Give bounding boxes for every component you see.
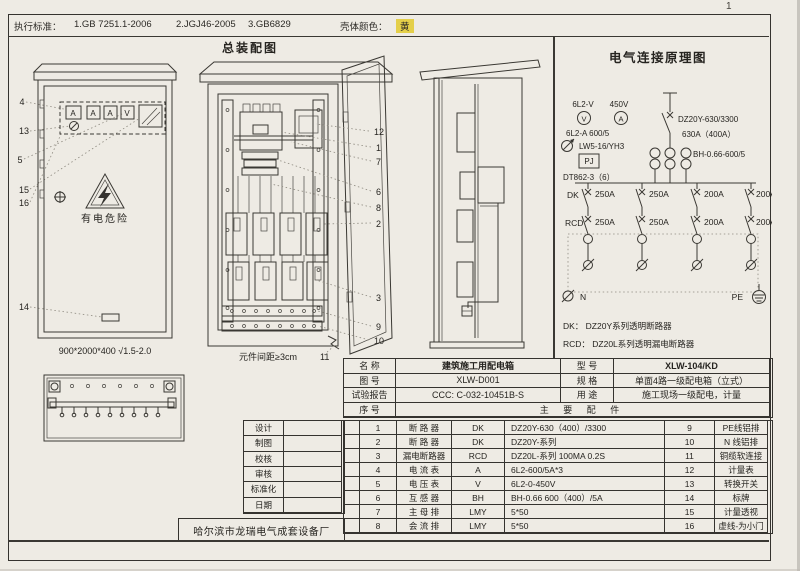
callout-13: 13 — [19, 126, 29, 136]
svg-text:PJ: PJ — [584, 157, 593, 166]
part-name: 电 流 表 — [397, 463, 452, 477]
ground-braid — [328, 336, 339, 349]
part-no: 6 — [360, 491, 397, 505]
pe-earth-symbol — [753, 284, 766, 304]
rcd-row-label: RCD — [565, 218, 583, 228]
neutral-label: N — [580, 292, 586, 302]
part-spec: DZ20Y-系列 — [505, 435, 665, 449]
part-name2: 标牌 — [715, 491, 768, 505]
callout-5: 5 — [17, 155, 22, 165]
part-code: BH — [452, 491, 505, 505]
mounting-panel — [218, 94, 328, 330]
spec-label: 规 格 — [561, 374, 614, 389]
standard-item-2: 2.JGJ46-2005 — [176, 19, 236, 30]
rcd-rating-4: 200A — [756, 217, 772, 227]
callout-4: 4 — [19, 97, 24, 107]
part-name2: N 线铝排 — [715, 435, 768, 449]
warning-text: 有电危险 — [81, 212, 129, 225]
part-name: 互 感 器 — [397, 491, 452, 505]
main-breaker-symbol — [662, 93, 677, 148]
part-spec: 5*50 — [505, 505, 665, 519]
main-breaker-rating: 630A（400A） — [682, 130, 735, 139]
part-no2: 12 — [665, 463, 715, 477]
drawing-no-value: XLW-D001 — [396, 374, 561, 389]
part-code: V — [452, 477, 505, 491]
callout-16: 16 — [19, 198, 29, 208]
signoff-check: 校核 — [244, 452, 284, 467]
use-label: 用 途 — [561, 388, 614, 403]
name-value: 建筑施工用配电箱 — [396, 359, 561, 374]
part-code: DK — [452, 435, 505, 449]
callout-1: 1 — [376, 143, 381, 153]
test-report-value: CCC: C-032-10451B-S — [396, 388, 561, 403]
cabinet-base — [430, 342, 524, 348]
part-no: 4 — [360, 463, 397, 477]
neutral-terminal — [562, 290, 574, 302]
part-name2: PE线铝排 — [715, 421, 768, 435]
main-breaker — [240, 104, 282, 150]
parts-header: 主 要 配 件 — [396, 403, 770, 418]
callout-14: 14 — [19, 302, 29, 312]
drawing-sheet: 1 执行标准： 1.GB 7251.1-2006 2.JGJ46-2005 3.… — [0, 0, 800, 571]
cabinet-open-view-drawing: 12 1 7 6 8 2 3 9 10 元件间距≥3cm 11 — [196, 52, 421, 364]
ammeter-1: A — [70, 109, 76, 118]
part-no: 3 — [360, 449, 397, 463]
pe-label: PE — [732, 292, 744, 302]
callout-10: 10 — [374, 336, 384, 346]
part-code: RCD — [452, 449, 505, 463]
part-spec: 6L2-600/5A*3 — [505, 463, 665, 477]
svg-text:A: A — [618, 115, 623, 124]
part-name: 电 压 表 — [397, 477, 452, 491]
callout-12: 12 — [374, 127, 384, 137]
part-no2: 14 — [665, 491, 715, 505]
titleblock-bottom-line — [8, 540, 769, 542]
nameplate — [102, 314, 119, 321]
component-box-2a — [460, 172, 475, 199]
cabinet-front-view-drawing: 4 13 5 15 16 14 A A A V 有电危险 — [10, 56, 200, 362]
part-name2: 铜缆软连接 — [715, 449, 768, 463]
part-name: 断 路 器 — [397, 435, 452, 449]
part-code: DK — [452, 421, 505, 435]
voltmeter-label: 6L2-V — [572, 100, 594, 109]
cabinet-door — [44, 86, 166, 332]
signoff-standardize: 标准化 — [244, 482, 284, 497]
rain-hood — [34, 64, 176, 72]
part-name2: 计量表 — [715, 463, 768, 477]
standard-item-3: 3.GB6829 — [248, 19, 291, 30]
ct-label: BH-0.66-600/5 — [693, 150, 746, 159]
part-spec: 6L2-0-450V — [505, 477, 665, 491]
voltmeter: V — [124, 109, 130, 118]
part-spec: DZ20Y-630（400）/3300 — [505, 421, 665, 435]
energy-meter — [295, 110, 322, 148]
dk-rating-1: 250A — [595, 189, 615, 199]
signoff-block: 设计 制图 校核 审核 标准化 日期 — [243, 420, 345, 514]
standard-item-1: 1.GB 7251.1-2006 — [74, 19, 152, 30]
drawing-no-label: 图 号 — [344, 374, 396, 389]
meter-panel — [60, 102, 165, 134]
part-code: LMY — [452, 505, 505, 519]
component-box-3 — [457, 210, 473, 242]
part-spec: BH-0.66 600（400）/5A — [505, 491, 665, 505]
schematic-title: 电气连接原理图 — [609, 50, 707, 65]
dk-row-label: DK — [567, 190, 579, 200]
callout-3: 3 — [376, 293, 381, 303]
front-view-caption: 900*2000*400 √1.5-2.0 — [59, 346, 152, 356]
main-breaker-model: DZ20Y-630/3300 — [678, 115, 739, 124]
seq-label: 序 号 — [344, 403, 396, 418]
rain-hood — [200, 62, 392, 74]
part-no: 2 — [360, 435, 397, 449]
callout-8: 8 — [376, 203, 381, 213]
signoff-design: 设计 — [244, 421, 284, 436]
part-name2: 虚线-为小门 — [715, 519, 768, 533]
part-name: 断 路 器 — [397, 421, 452, 435]
svg-text:V: V — [581, 115, 586, 124]
electric-hazard-sign — [86, 174, 124, 208]
cabinet-side-view-drawing — [418, 56, 550, 356]
part-name: 漏电断路器 — [397, 449, 452, 463]
callout-9: 9 — [376, 322, 381, 332]
part-no2: 15 — [665, 505, 715, 519]
spec-value: 单面4路一级配电箱（立式） — [614, 374, 770, 389]
name-label: 名 称 — [344, 359, 396, 374]
component-box-2b — [478, 167, 504, 203]
part-no: 5 — [360, 477, 397, 491]
rcd-rating-2: 250A — [649, 217, 669, 227]
part-no2: 10 — [665, 435, 715, 449]
shell-color-value: 黄 — [396, 19, 414, 33]
part-no: 8 — [360, 519, 397, 533]
switch-label: LW5-16/YH3 — [579, 142, 625, 151]
shell-color-label: 壳体颜色： — [340, 19, 388, 33]
rain-hood — [420, 60, 540, 80]
ammeter-label: 6L2-A 600/5 — [566, 129, 610, 138]
component-box-4 — [457, 262, 473, 297]
part-no2: 16 — [665, 519, 715, 533]
open-view-caption: 元件间距≥3cm — [239, 351, 297, 362]
info-table: 名 称 建筑施工用配电箱 型 号 XLW-104/KD 图 号 XLW-D001… — [343, 358, 773, 418]
signoff-date: 日期 — [244, 498, 284, 513]
part-no2: 9 — [665, 421, 715, 435]
callout-15: 15 — [19, 185, 29, 195]
parts-table: 1 断 路 器 DK DZ20Y-630（400）/3300 9 PE线铝排 2… — [343, 420, 773, 534]
test-report-label: 试验报告 — [344, 388, 396, 403]
voltage-label: 450V — [610, 100, 629, 109]
part-no2: 13 — [665, 477, 715, 491]
rcd-rating-3: 200A — [704, 217, 724, 227]
part-no: 7 — [360, 505, 397, 519]
part-name2: 计量透视 — [715, 505, 768, 519]
energy-meter-label: DT862-3（6） — [563, 173, 615, 182]
open-door — [342, 56, 392, 354]
busbar — [50, 402, 174, 407]
busbar-detail-drawing — [40, 368, 188, 443]
part-code: LMY — [452, 519, 505, 533]
legend-rcd: RCD： DZ20L系列透明漏电断路器 — [563, 339, 695, 349]
part-no: 1 — [360, 421, 397, 435]
use-value: 施工现场一级配电，计量 — [614, 388, 770, 403]
part-spec: 5*50 — [505, 519, 665, 533]
part-code: A — [452, 463, 505, 477]
company-name: 哈尔滨市龙瑞电气成套设备厂 — [178, 518, 345, 542]
rcd-rating-1: 250A — [595, 217, 615, 227]
small-door-dashed-outline — [568, 234, 758, 292]
component-box-1 — [457, 113, 475, 152]
dk-rating-4: 200A — [756, 189, 772, 199]
part-name2: 转换开关 — [715, 477, 768, 491]
callout-11: 11 — [320, 352, 329, 362]
ammeter-2: A — [90, 109, 96, 118]
pe-terminal-strip — [222, 306, 322, 316]
part-no2: 11 — [665, 449, 715, 463]
callout-2: 2 — [376, 219, 381, 229]
part-spec: DZ20L-系列 100MA 0.2S — [505, 449, 665, 463]
electrical-schematic: 电气连接原理图 6L2-V 450V V A 6L2-A 600/5 LW5-1… — [553, 36, 772, 358]
callout-6: 6 — [376, 187, 381, 197]
page-number: 1 — [726, 1, 732, 12]
part-name: 会 流 排 — [397, 519, 452, 533]
model-value: XLW-104/KD — [614, 359, 770, 374]
wiring — [238, 176, 315, 262]
model-label: 型 号 — [561, 359, 614, 374]
current-transformers — [242, 152, 278, 175]
signoff-draft: 制图 — [244, 436, 284, 451]
callout-7: 7 — [376, 157, 381, 167]
ct-symbols — [650, 148, 691, 183]
signoff-review: 审核 — [244, 467, 284, 482]
dk-rating-2: 250A — [649, 189, 669, 199]
feeder-breakers-row — [226, 213, 327, 255]
part-name: 主 母 排 — [397, 505, 452, 519]
legend-dk: DK： DZ20Y系列透明断路器 — [563, 321, 672, 331]
standards-label: 执行标准： — [14, 19, 62, 33]
dk-rating-3: 200A — [704, 189, 724, 199]
ammeter-3: A — [107, 109, 113, 118]
